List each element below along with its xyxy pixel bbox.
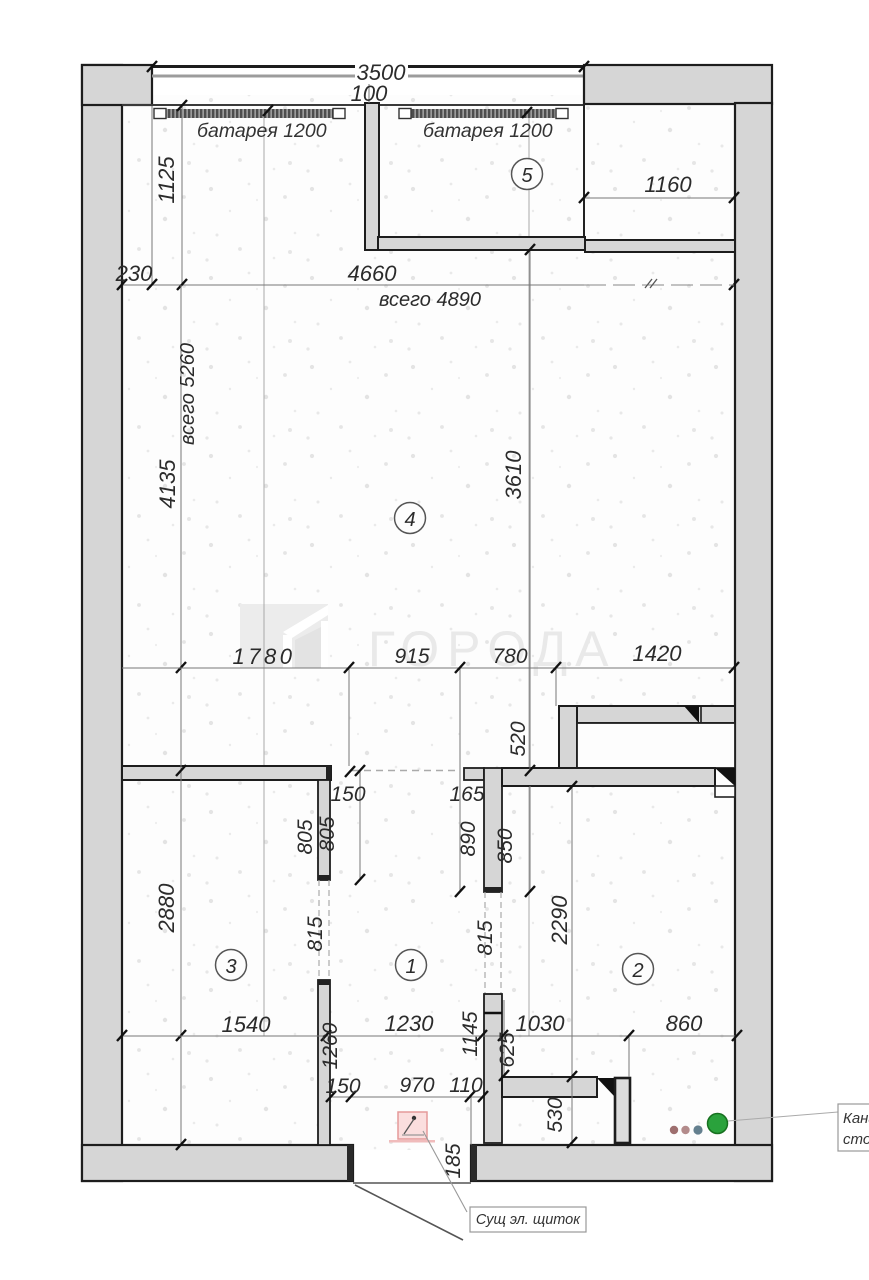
- svg-text:1125: 1125: [154, 156, 179, 204]
- svg-text:всего 4890: всего 4890: [379, 289, 481, 311]
- svg-text:2290: 2290: [547, 895, 572, 946]
- svg-text:815: 815: [304, 916, 327, 951]
- svg-text:805: 805: [294, 819, 317, 854]
- svg-text:915: 915: [394, 645, 429, 668]
- svg-text:890: 890: [457, 821, 480, 856]
- svg-text:стояк: стояк: [843, 1131, 869, 1148]
- svg-text:4135: 4135: [155, 459, 180, 509]
- svg-text:батарея 1200: батарея 1200: [197, 120, 327, 142]
- svg-text:780: 780: [492, 645, 527, 668]
- svg-text:165: 165: [449, 783, 484, 806]
- svg-text:530: 530: [544, 1097, 567, 1132]
- svg-text:1: 1: [405, 956, 416, 978]
- svg-text:Сущ эл. щиток: Сущ эл. щиток: [476, 1212, 581, 1228]
- svg-text:850: 850: [494, 828, 517, 863]
- svg-text:4: 4: [404, 509, 415, 531]
- svg-text:3: 3: [225, 956, 236, 978]
- svg-text:150: 150: [330, 783, 365, 806]
- svg-text:всего 5260: всего 5260: [177, 343, 199, 445]
- svg-text:батарея 1200: батарея 1200: [423, 120, 553, 142]
- svg-text:625: 625: [496, 1032, 519, 1067]
- svg-text:110: 110: [449, 1074, 483, 1097]
- svg-text:100: 100: [351, 81, 388, 106]
- svg-text:520: 520: [507, 721, 530, 756]
- svg-text:970: 970: [399, 1074, 434, 1097]
- svg-text:1780: 1780: [233, 644, 296, 669]
- svg-text:860: 860: [666, 1011, 703, 1036]
- svg-text:1420: 1420: [633, 641, 683, 666]
- svg-text:230: 230: [115, 261, 153, 286]
- svg-text:5: 5: [521, 165, 533, 187]
- svg-text:1230: 1230: [385, 1011, 435, 1036]
- svg-text:4660: 4660: [348, 261, 398, 286]
- svg-text:3610: 3610: [501, 450, 526, 500]
- svg-text:2880: 2880: [154, 883, 179, 934]
- svg-text:1145: 1145: [459, 1011, 482, 1056]
- svg-text:1160: 1160: [644, 172, 692, 197]
- svg-text:805: 805: [316, 816, 339, 851]
- svg-text:Канализ: Канализ: [843, 1110, 869, 1127]
- svg-text:1540: 1540: [222, 1012, 272, 1037]
- svg-text:1030: 1030: [516, 1011, 566, 1036]
- svg-text:1260: 1260: [319, 1022, 342, 1069]
- svg-text:2: 2: [631, 960, 643, 982]
- svg-text:150: 150: [325, 1075, 360, 1098]
- svg-text:815: 815: [474, 920, 497, 955]
